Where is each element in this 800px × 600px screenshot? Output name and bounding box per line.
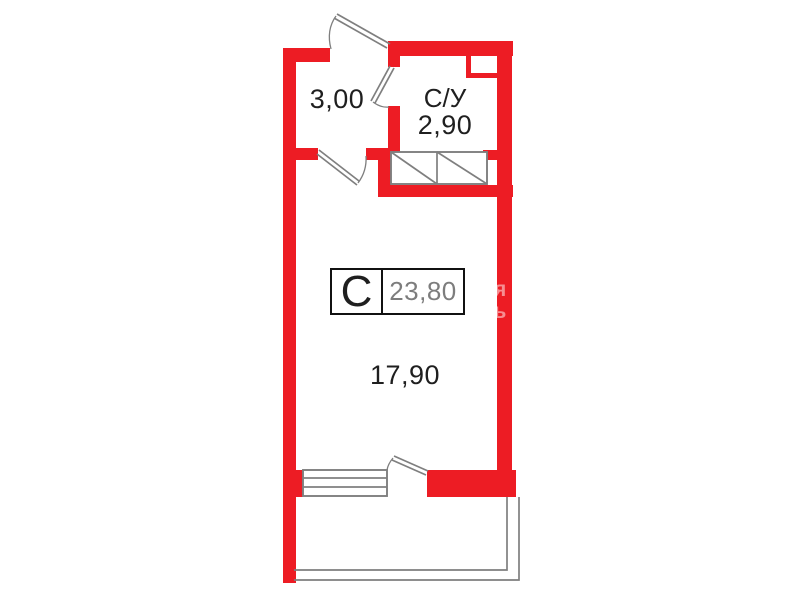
watermark-letter-1: я (494, 279, 506, 300)
wall-partition-top-stub (388, 56, 400, 67)
watermark-letter-2: ъ (491, 301, 506, 322)
wall-bottom-right-block (427, 470, 516, 497)
entrance-door (329, 14, 390, 49)
wall-top-hallway (283, 48, 330, 62)
balcony-outline (294, 497, 519, 580)
bathroom-door-leaf (375, 68, 394, 103)
ventilation-shaft (391, 152, 487, 184)
wall-hallway-bottom-left-stub (296, 148, 318, 160)
corner-niche (471, 56, 497, 73)
wall-bottom-left-block (283, 470, 303, 497)
window-frame (303, 470, 387, 496)
wall-left (283, 48, 296, 583)
hallway-area-label: 3,00 (300, 84, 374, 115)
balcony-outer-line (294, 497, 519, 580)
unit-total-area: 23,80 (383, 270, 463, 313)
room-door (317, 150, 366, 185)
unit-type-label: С (332, 270, 383, 313)
wall-bathroom-bottom (378, 185, 513, 197)
balcony-inner-line (294, 497, 507, 570)
living-area-label: 17,90 (368, 360, 442, 391)
balcony-door (387, 456, 428, 475)
wall-right (497, 41, 512, 497)
shaft-box (391, 152, 487, 184)
wall-top-bathroom (388, 41, 513, 56)
bathroom-area-label: 2,90 (408, 110, 482, 141)
wall-partition-bottom-stub (388, 106, 400, 152)
floor-plan: 3,00 С/У 2,90 17,90 С 23,80 я ъ (0, 0, 800, 600)
balcony-door-swing-arc (387, 458, 393, 470)
room-door-leaf (317, 154, 357, 185)
room-door-swing-arc (358, 156, 366, 183)
bathroom-door (371, 66, 394, 107)
entrance-door-leaf (334, 18, 387, 48)
room-door-leaf (319, 150, 359, 181)
unit-label-box: С 23,80 (330, 268, 465, 315)
entrance-door-leaf (337, 14, 390, 44)
entrance-door-swing-arc (329, 16, 336, 49)
window (303, 470, 387, 496)
